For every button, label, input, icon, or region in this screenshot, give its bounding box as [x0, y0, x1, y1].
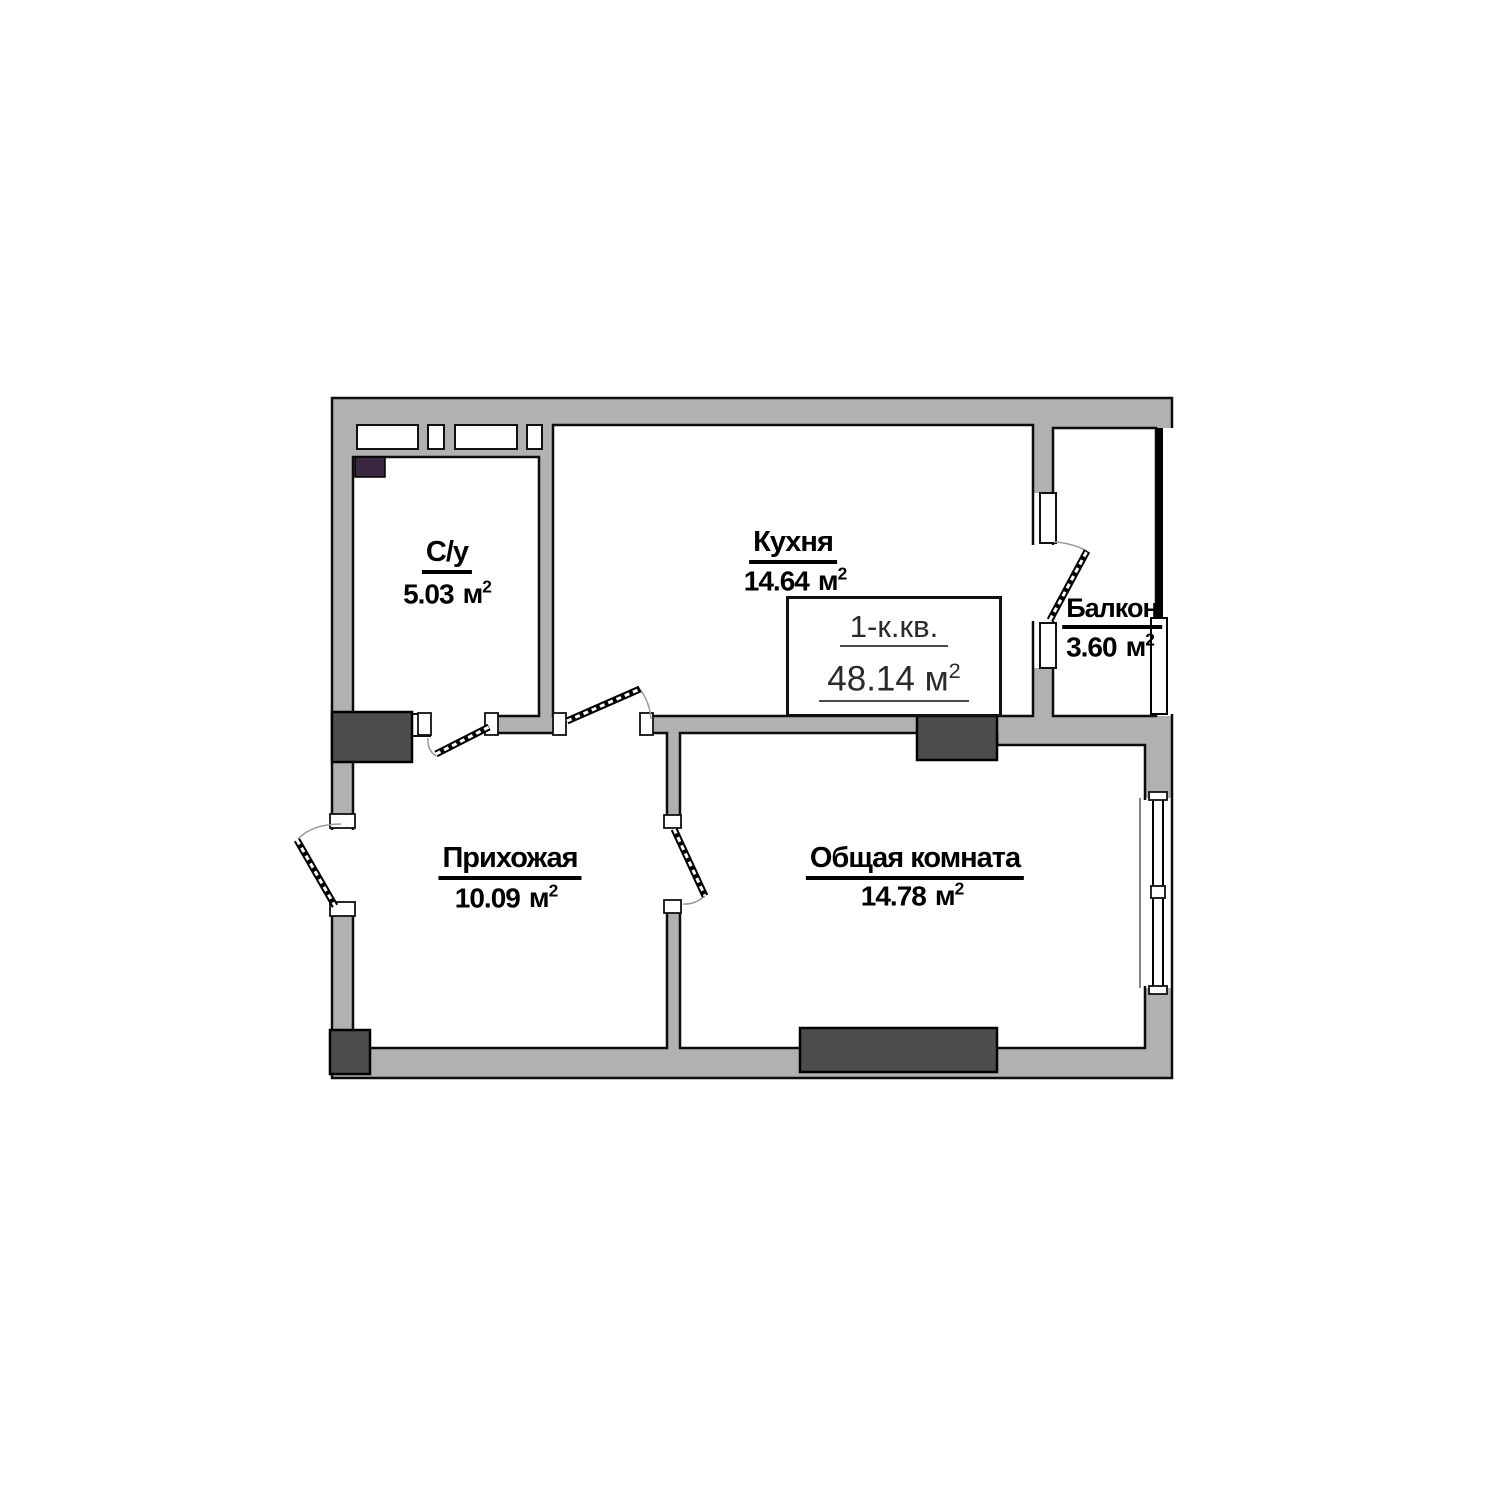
apartment-summary-box: 1-к.кв. 48.14 м2: [786, 596, 1002, 717]
floor-plan: С/у 5.03м2 Кухня 14.64м2 Балкон 3.60м2 П…: [0, 0, 1500, 1500]
apartment-type: 1-к.кв.: [840, 611, 948, 647]
column-living-bottom: [800, 1028, 997, 1072]
room-label-living-room: Общая комната: [806, 843, 1024, 880]
room-name: Балкон: [1062, 594, 1162, 629]
room-label-bathroom: С/у: [422, 537, 472, 574]
room-label-balcony: Балкон: [1062, 594, 1162, 629]
column-left-mid: [332, 712, 412, 762]
room-area-kitchen: 14.64м2: [744, 565, 846, 596]
room-area-bathroom: 5.03м2: [403, 578, 491, 609]
vent-shaft: [355, 457, 385, 477]
room-label-hallway: Прихожая: [438, 843, 581, 880]
room-name: Кухня: [749, 527, 837, 564]
room-area-hallway: 10.09м2: [455, 882, 557, 913]
column-bottom-left: [330, 1030, 370, 1074]
room-name: С/у: [422, 537, 472, 574]
room-name: Общая комната: [806, 843, 1024, 880]
room-area-living-room: 14.78м2: [861, 880, 963, 911]
column-living-top: [917, 716, 997, 760]
room-name: Прихожая: [438, 843, 581, 880]
opening-patches: [327, 545, 1167, 986]
floor-plan-drawing: [0, 0, 1500, 1500]
room-label-kitchen: Кухня: [749, 527, 837, 564]
room-area-balcony: 3.60м2: [1066, 631, 1154, 662]
apartment-total-area: 48.14 м2: [819, 660, 968, 702]
balcony-outline: [1053, 428, 1156, 716]
